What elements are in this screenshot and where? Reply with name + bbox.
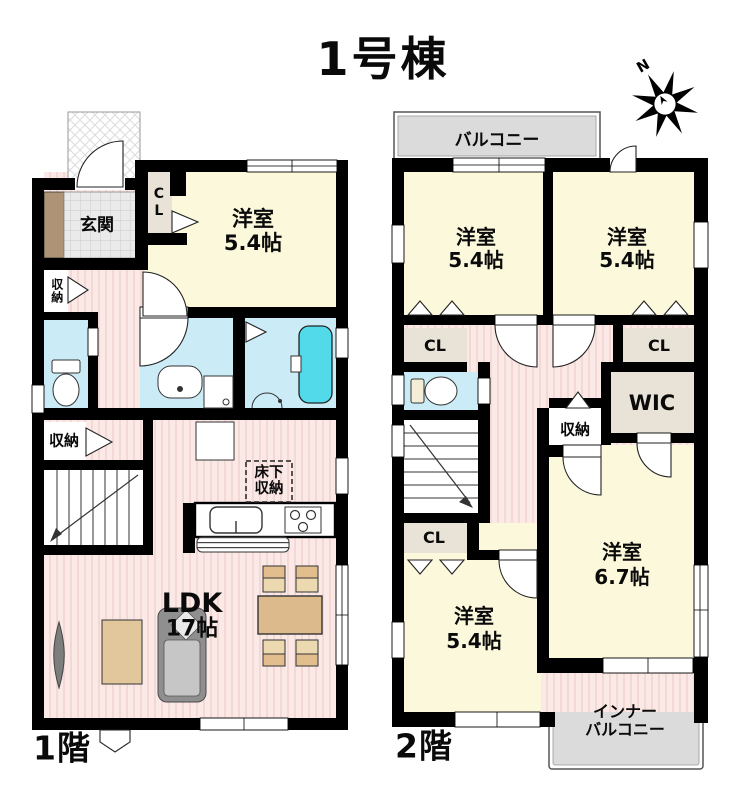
f2-wic (611, 372, 694, 433)
f2-bedroom-ne (553, 172, 694, 325)
floorplan-canvas: N (0, 0, 740, 806)
f1-storage-b (44, 422, 86, 460)
stove (285, 507, 321, 533)
f2-closet-nw (404, 328, 467, 362)
compass: N (610, 43, 711, 151)
f2-balcony (394, 112, 600, 160)
f2-storage (549, 408, 601, 445)
f2-closet-sw (404, 523, 467, 553)
f1-terrace-door (100, 730, 130, 752)
f1-storage-a (44, 266, 68, 312)
f1-shoe-cabinet (44, 192, 64, 258)
f2-stairs (404, 420, 478, 513)
f2-closet-ne (623, 328, 694, 362)
compass-north-label: N (634, 57, 652, 77)
f1-genkan-floor (64, 192, 136, 258)
f1-toilet-fixture (52, 360, 80, 406)
floor1-plan (32, 112, 348, 752)
coffee-table (102, 620, 142, 684)
floor2-plan (392, 112, 708, 769)
sofa (158, 608, 206, 702)
f2-balcony-door-arc (610, 146, 636, 172)
f1-closet (145, 172, 172, 233)
dining-table (258, 596, 322, 634)
fridge-space (196, 422, 234, 460)
f1-stairs (44, 470, 143, 545)
counter-front (197, 537, 289, 552)
f2-toilet-fixture (411, 377, 457, 405)
floorplan-page: N 1号棟 玄関 CL 洋室 5.4帖 収納 収納 床下 収納 LDK 17帖 … (0, 0, 740, 806)
f2-bedroom-nw (404, 172, 543, 325)
